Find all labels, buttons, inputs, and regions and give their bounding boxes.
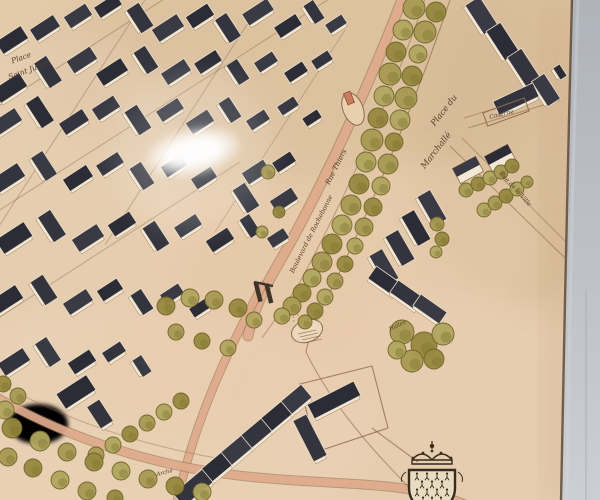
tree	[414, 21, 436, 43]
tree	[403, 0, 425, 19]
tree	[432, 323, 454, 345]
tree	[229, 299, 247, 317]
tree	[388, 341, 406, 359]
tree	[385, 133, 403, 151]
tree	[85, 453, 103, 471]
tree	[298, 315, 312, 329]
tree	[368, 108, 388, 128]
tree	[256, 226, 268, 238]
tree	[2, 418, 22, 438]
tree	[337, 256, 353, 272]
tree	[205, 291, 223, 309]
tree	[349, 174, 369, 194]
tree	[424, 349, 444, 369]
tree	[193, 483, 211, 500]
tree	[390, 110, 410, 130]
tree	[341, 195, 361, 215]
tree	[51, 471, 69, 489]
tree	[402, 66, 422, 86]
framed-map-photo: PlaceSaint JulienRue ThiersBoulevard de …	[0, 0, 600, 500]
tree	[426, 2, 446, 22]
tree	[0, 401, 14, 419]
tree	[430, 217, 444, 231]
tree	[24, 459, 42, 477]
tree	[395, 87, 417, 109]
tree	[58, 443, 76, 461]
tree	[78, 482, 96, 500]
tree	[386, 42, 406, 62]
tree	[361, 129, 383, 151]
tree	[347, 238, 363, 254]
tree	[181, 289, 199, 307]
tree	[122, 426, 138, 442]
tree	[409, 45, 427, 63]
tree	[364, 198, 382, 216]
tree	[303, 269, 321, 287]
tree	[156, 404, 172, 420]
tree	[435, 232, 449, 246]
tree	[194, 333, 210, 349]
map-canvas: PlaceSaint JulienRue ThiersBoulevard de …	[0, 0, 600, 500]
tree	[393, 20, 413, 40]
tree	[173, 393, 189, 409]
tree	[139, 415, 155, 431]
tree	[273, 206, 285, 218]
tree	[505, 159, 519, 173]
tree	[105, 437, 121, 453]
tree	[10, 388, 26, 404]
tree	[317, 289, 333, 305]
tree	[372, 177, 390, 195]
tree	[327, 273, 343, 289]
tree	[430, 246, 442, 258]
tree	[0, 448, 17, 466]
tree	[521, 176, 533, 188]
tree	[379, 63, 401, 85]
tree	[322, 234, 342, 254]
tree	[220, 340, 236, 356]
tree	[166, 477, 184, 495]
glare-reflection	[115, 74, 271, 230]
tree	[30, 431, 50, 451]
tree	[139, 470, 157, 488]
tree	[246, 312, 262, 328]
tree	[274, 308, 290, 324]
tree	[356, 152, 376, 172]
tree	[168, 324, 184, 340]
tree	[374, 86, 394, 106]
tree	[112, 462, 130, 480]
tree	[378, 154, 398, 174]
tree	[332, 215, 352, 235]
tree	[312, 252, 332, 272]
tree	[355, 218, 373, 236]
tree	[157, 297, 175, 315]
